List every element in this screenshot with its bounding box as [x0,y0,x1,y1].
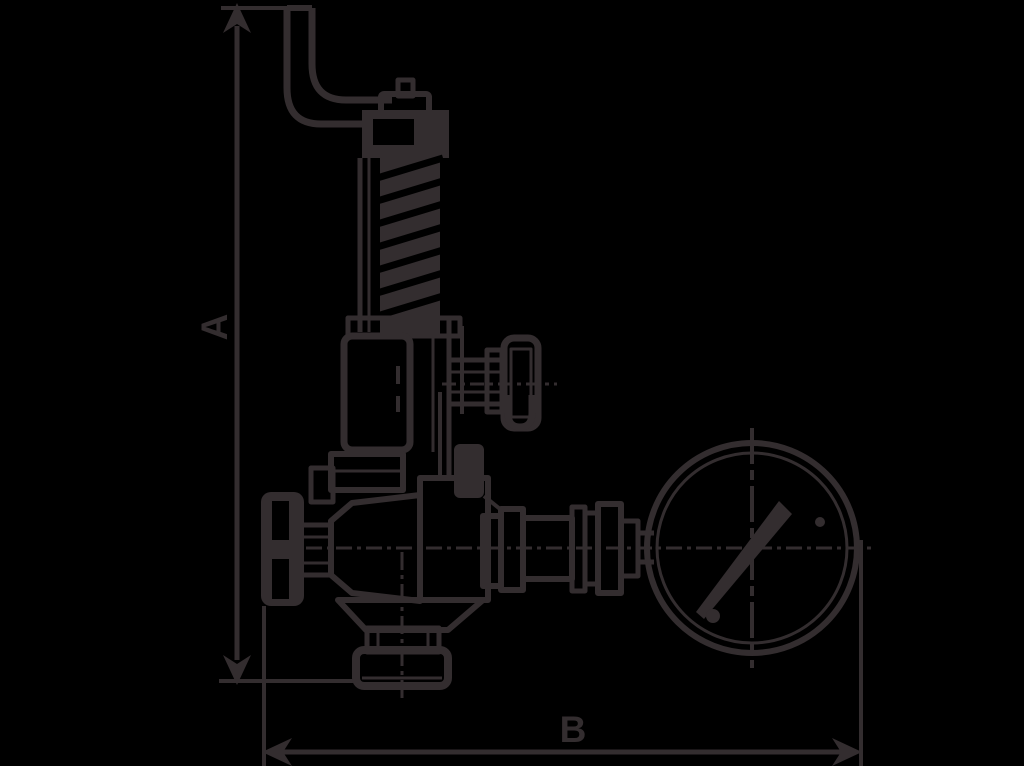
valve-diagram: A B [0,0,1024,766]
technical-drawing-canvas: A B [0,0,1024,766]
gauge-dial-dot-right [815,517,825,527]
housing-base-flange [331,454,403,490]
dimension-a-label: A [194,314,235,341]
side-stem [449,350,505,412]
valve-drawing [261,8,872,702]
wheel-stem [304,525,331,575]
spring-coil [360,148,443,334]
gauge-needle [696,501,792,619]
lever-arm [287,8,392,124]
dimension-b-label: B [560,709,587,750]
spring-housing [344,336,410,450]
gauge-dial-dot-lower [706,609,720,623]
main-handwheel [261,492,304,606]
